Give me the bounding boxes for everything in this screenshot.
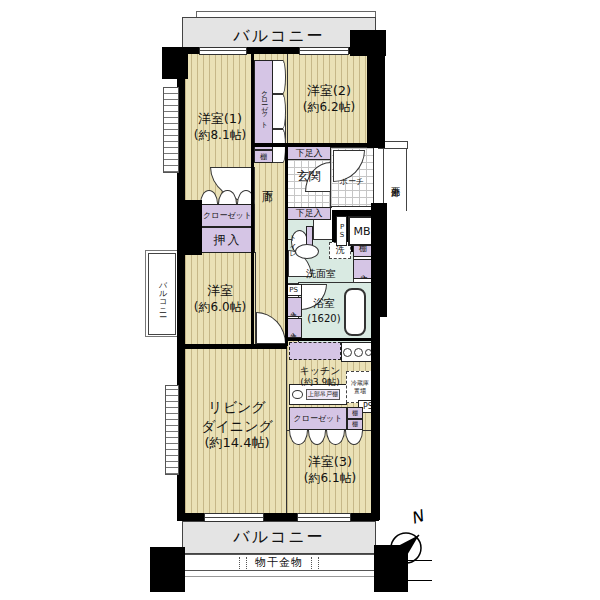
balcony-bottom: バルコニー: [182, 521, 376, 554]
closet-kitchen-shelf-1: 棚: [347, 407, 363, 419]
wall-ld-divider: [177, 344, 287, 349]
closet-center-shelf-label: 棚: [260, 152, 267, 162]
washroom-storage: 物入: [353, 259, 373, 279]
window-western1-left: [164, 88, 178, 172]
laundry-hardware-strip: 物干金物: [182, 554, 376, 571]
wall-right-upper: [367, 47, 385, 148]
wash-basin: [295, 244, 319, 259]
wall-corridor-left: [251, 52, 254, 346]
living-dining-floor: [185, 346, 287, 516]
wall-left-block: [177, 200, 202, 255]
wall-corridor-right: [285, 143, 288, 346]
oshiire: 押入: [200, 227, 255, 253]
wall-corner-bl: [150, 547, 185, 592]
oshiire-label: 押入: [214, 232, 242, 249]
balcony-top-label: バルコニー: [233, 26, 325, 47]
wall-kitchen-top: [285, 338, 375, 341]
wall-right-lower: [371, 314, 380, 520]
closet-center-label: クローゼット: [260, 85, 267, 125]
closet-kitchen-shelf-2-label: 棚: [352, 420, 358, 429]
sink-icon: [292, 390, 303, 399]
laundry-hardware-mark-left: [239, 557, 247, 569]
floorplan: バルコニー クローゼット 棚 棚 クローゼット 押入 下足入: [0, 0, 600, 600]
closet-center-shelf: 棚: [254, 150, 273, 163]
window-living-bottom: [205, 514, 263, 521]
balcony-left-label: バルコニー: [158, 276, 166, 312]
site-line-2: [408, 580, 432, 581]
closet-kitchen-shelf-2: 棚: [347, 419, 363, 430]
compass: N: [383, 508, 435, 572]
room-western2-floor: [287, 52, 371, 147]
window-western2-top: [300, 48, 348, 54]
hanging-cupboard-label: 上部吊戸棚: [306, 389, 340, 400]
wall-genkan-top: [253, 143, 375, 147]
wall-left-lower: [177, 348, 185, 520]
outer-corridor: 外廊部下: [383, 149, 407, 211]
balcony-bottom-label: バルコニー: [233, 527, 325, 548]
wall-left-upper: [177, 47, 185, 207]
closet-kitchen: クローゼット: [289, 407, 347, 430]
compass-n-label: N: [408, 508, 427, 528]
closet-left: クローゼット: [200, 204, 255, 227]
meter-box-label: MB: [353, 225, 370, 238]
shoe-box-upper: 下足入: [287, 146, 331, 160]
room-western-mid-floor: [185, 253, 255, 346]
window-living-left: [166, 386, 178, 474]
wall-left-mid: [177, 250, 185, 350]
kitchen-counter-lower: 上部吊戸棚: [289, 384, 347, 405]
closet-center: クローゼット: [254, 60, 273, 150]
laundry-hardware-mark-right: [311, 557, 319, 569]
shoe-box-lower-label: 下足入: [296, 207, 323, 220]
balcony-left: バルコニー: [148, 253, 176, 335]
shoe-box-lower: 下足入: [287, 207, 331, 220]
kitchen-counter-top: [289, 342, 341, 360]
shoe-box-upper-label: 下足入: [296, 147, 323, 160]
ps-bath-label: PS: [289, 286, 298, 294]
ps-shaft-label: PS: [338, 223, 345, 239]
laundry-hardware-label: 物干金物: [255, 555, 303, 570]
closet-left-folding-door: [200, 190, 255, 204]
window-western3-bottom: [298, 514, 350, 521]
bathtub: [344, 288, 366, 336]
closet-kitchen-shelf-1-label: 棚: [352, 409, 358, 418]
closet-kitchen-label: クローゼット: [294, 413, 343, 424]
closet-left-label: クローゼット: [203, 210, 252, 221]
ps-shaft: PS: [336, 216, 347, 246]
closet-kitchen-folding-door: [289, 430, 363, 445]
stove: [341, 342, 373, 362]
window-western1-top: [200, 48, 246, 54]
wall-right-mid: [371, 203, 387, 317]
balcony-bottom-line: [182, 576, 376, 577]
